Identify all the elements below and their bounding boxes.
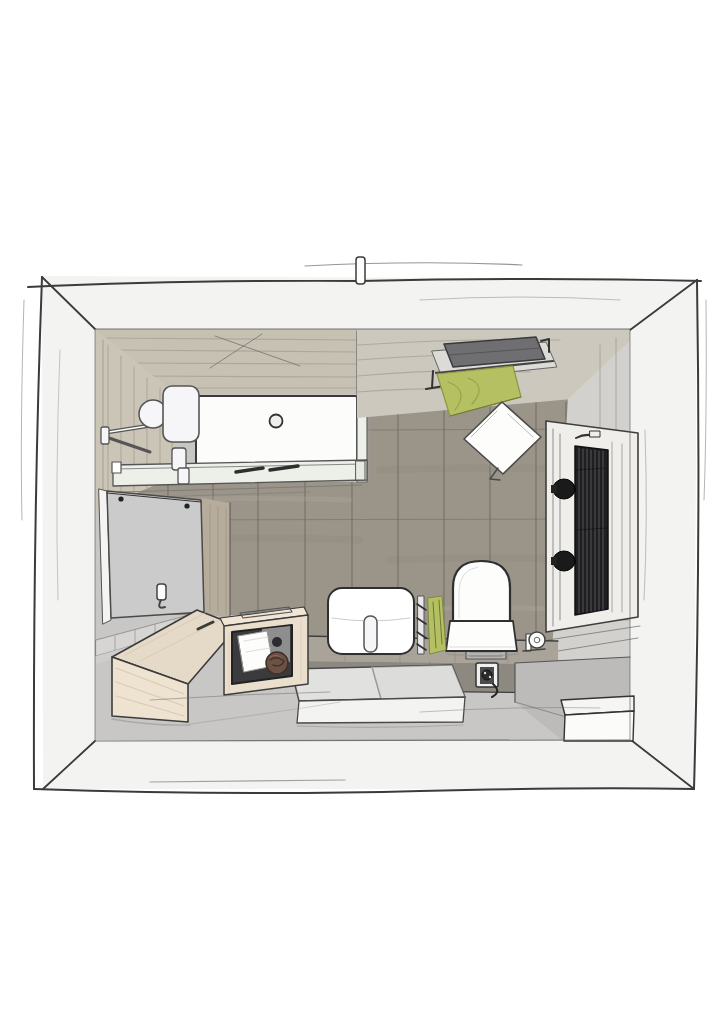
- shower-tray: [196, 396, 357, 468]
- wall-top-tab: [356, 257, 365, 284]
- left-wood-panel: [201, 498, 230, 618]
- washbasin: [328, 588, 414, 655]
- vanity-cabinet: [220, 607, 308, 695]
- bathroom-sketch-page: [0, 0, 724, 1024]
- toilet: [446, 561, 518, 656]
- basin-faucet: [364, 616, 377, 652]
- shower-drain: [270, 415, 283, 428]
- radiator-niche: [546, 421, 640, 652]
- corner-step-box: [561, 696, 634, 741]
- bathroom-sketch: [0, 0, 724, 1024]
- bath-step-mat: [291, 665, 465, 727]
- towel-rail: [417, 596, 446, 654]
- wall-mirror: [99, 489, 204, 624]
